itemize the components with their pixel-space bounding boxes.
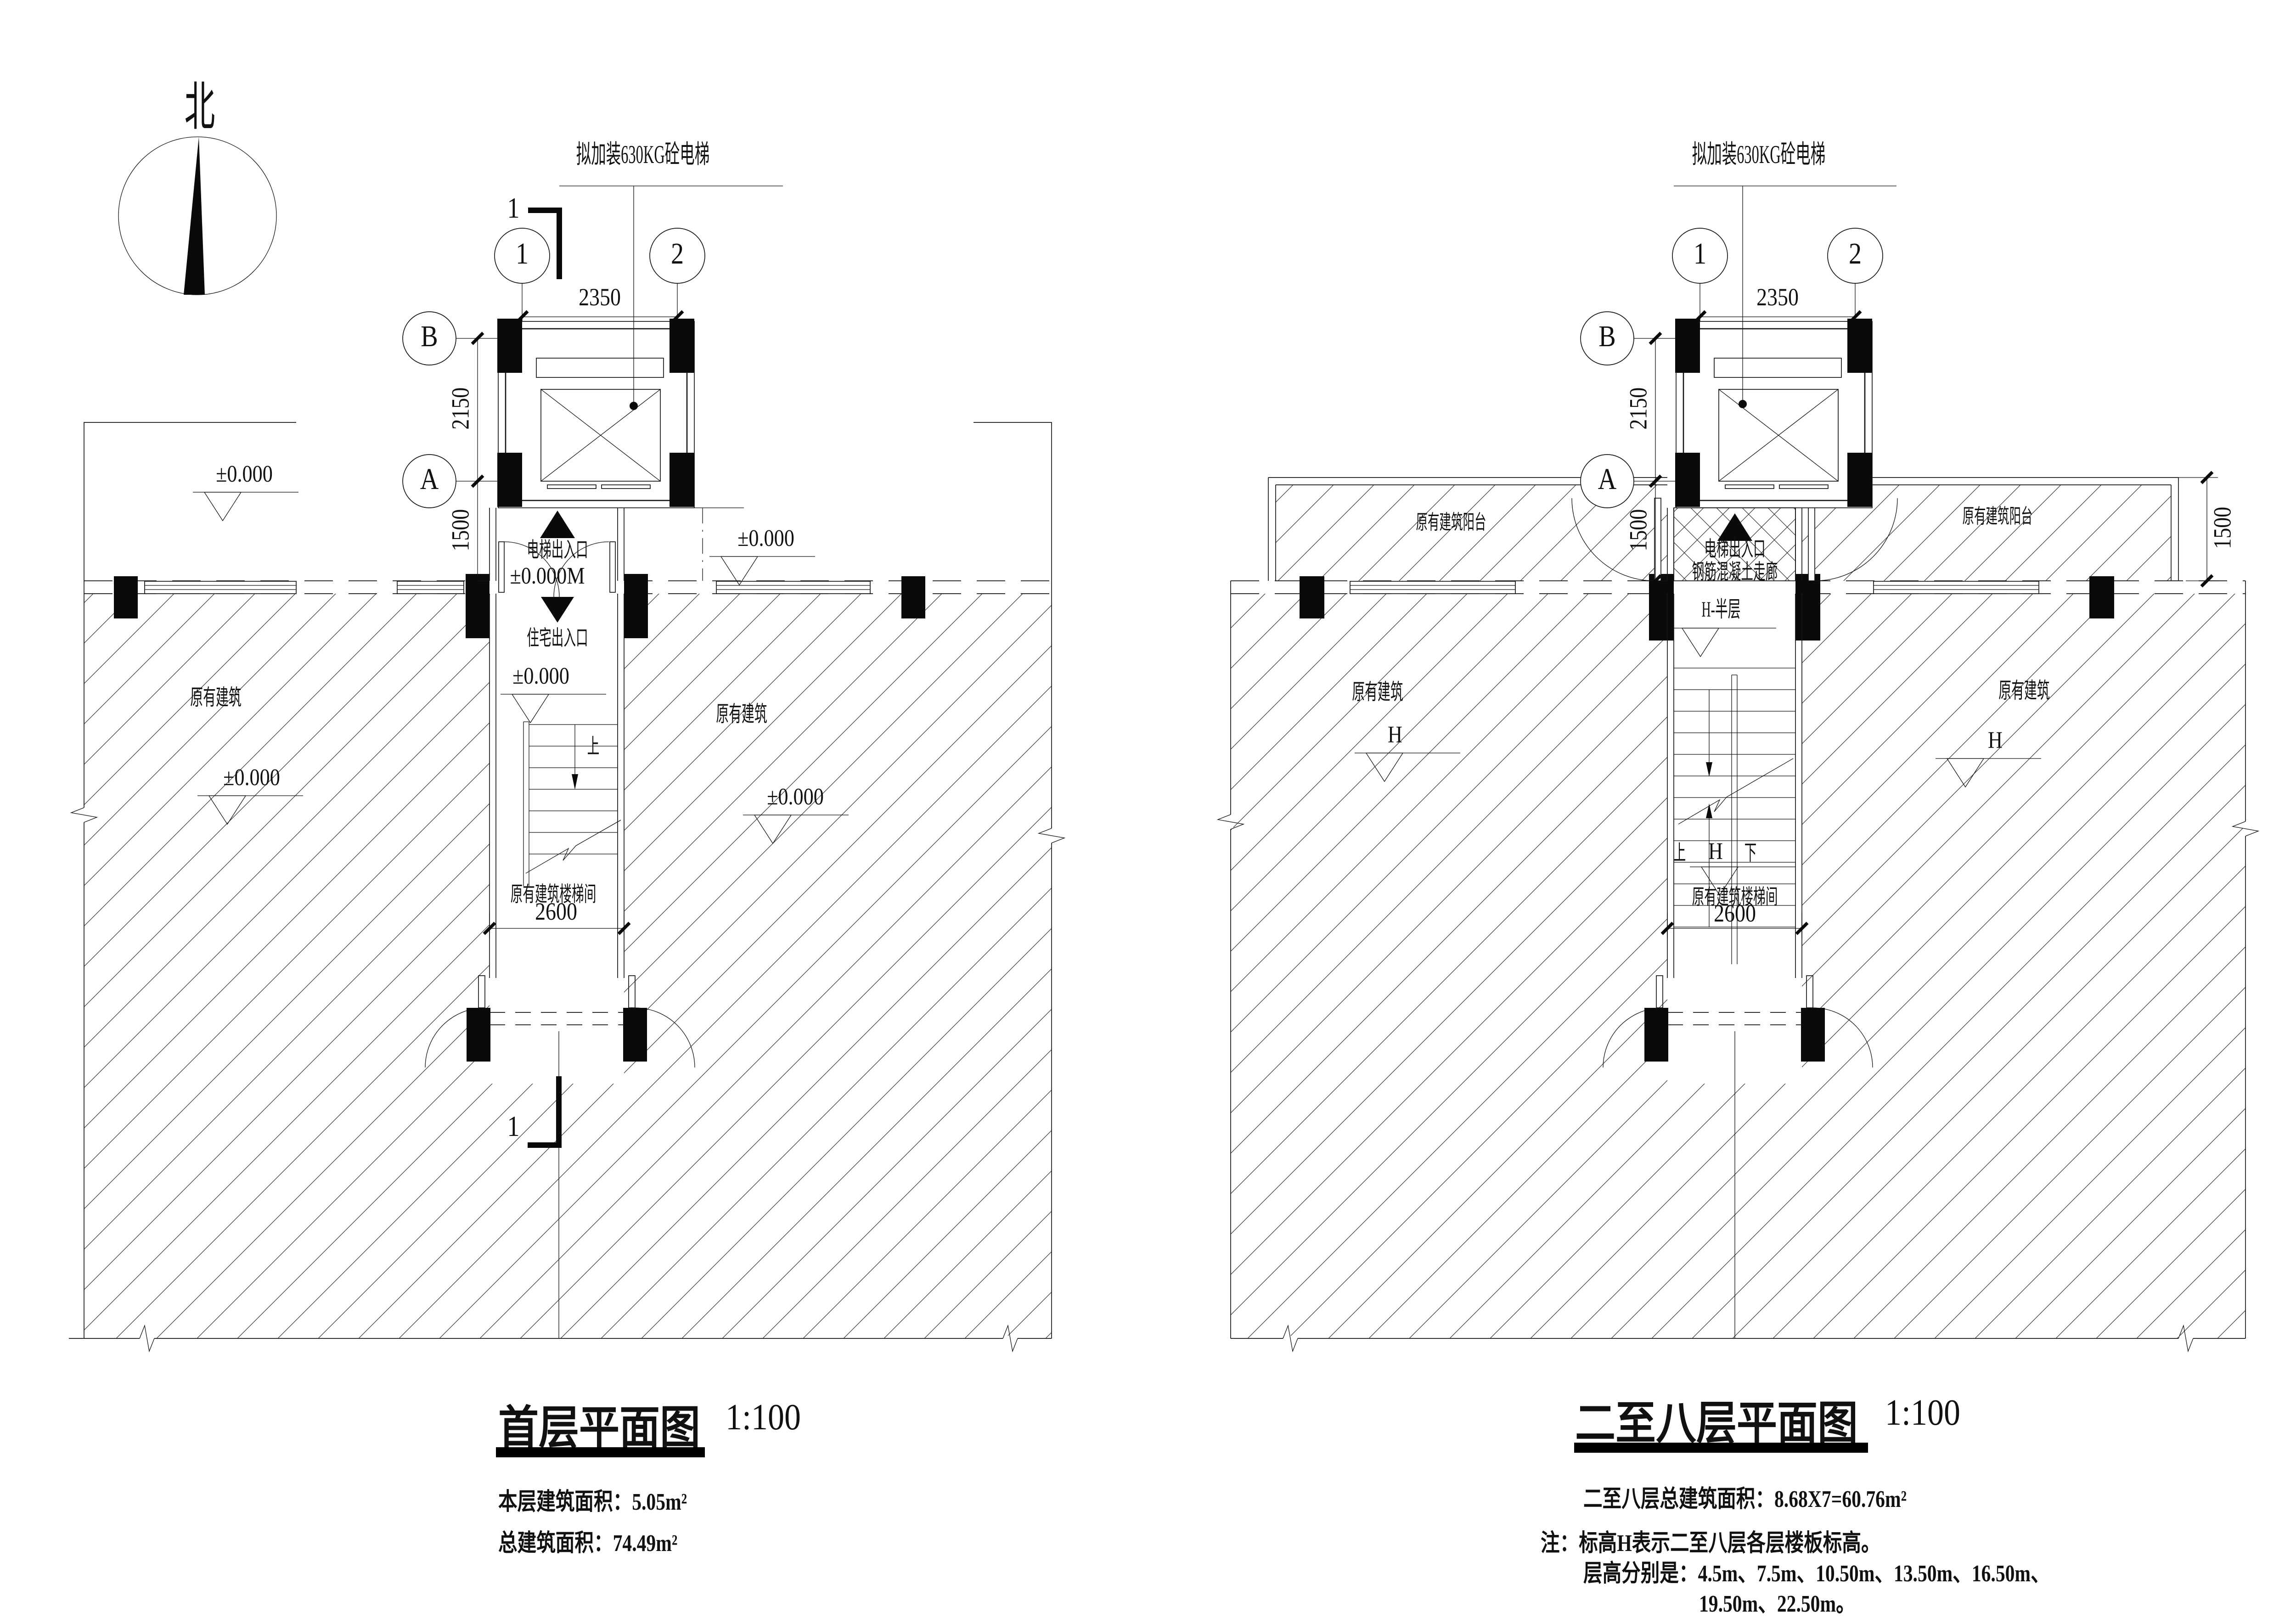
right-grid-bubble-2: 2 xyxy=(1738,237,1972,271)
left-floor-area-note: 本层建筑面积：5.05m² xyxy=(498,1482,687,1517)
right-title-underline xyxy=(1574,1443,1868,1453)
right-existing-building-left: 原有建筑 xyxy=(1298,680,1458,705)
hatch-existing-left xyxy=(1231,594,1667,1338)
left-grid-bubble-2: 2 xyxy=(560,237,794,271)
right-level-h-right: H xyxy=(1878,727,2112,753)
right-note-3: 19.50m、22.50m。 xyxy=(1699,1584,1855,1618)
left-dim-1500: 1500 xyxy=(447,413,474,647)
left-level-zero-stairwell: ±0.000 xyxy=(424,663,658,689)
residence-entrance-arrow-icon xyxy=(541,597,574,623)
right-dim-2350: 2350 xyxy=(1660,284,1895,311)
right-balcony-right-label: 原有建筑阳台 xyxy=(1918,505,2077,528)
right-corridor-label: 钢筋混凝土走廊 xyxy=(1655,560,1815,584)
left-title-underline xyxy=(496,1447,705,1457)
hatch-existing-right xyxy=(1802,594,2245,1338)
right-stairwell-label: 原有建筑楼梯间 xyxy=(1655,885,1815,910)
right-note-2: 层高分别是：4.5m、7.5m、10.50m、13.50m、16.50m、 xyxy=(1583,1554,2050,1588)
right-half-level-label: H-半层 xyxy=(1641,597,1801,622)
left-up-label: 上 xyxy=(513,735,673,759)
right-corridor-entrance-label: 电梯出入口 xyxy=(1655,537,1815,562)
left-elevator-entrance-label: 电梯出入口 xyxy=(478,538,637,562)
level-marker xyxy=(193,492,298,521)
left-section-number-top: 1 xyxy=(396,192,630,224)
right-note-1: 注：标高H表示二至八层各层楼板标高。 xyxy=(1541,1523,1880,1558)
left-entry-level-label: ±0.000M xyxy=(430,563,664,589)
left-residence-entrance-label: 住宅出入口 xyxy=(478,626,637,651)
right-leader-text: 拟加装630KG砼电梯 xyxy=(1679,140,1839,169)
right-down-label: 下 xyxy=(1671,841,1830,865)
north-arrow-icon xyxy=(118,137,276,295)
left-section-number-bottom: 1 xyxy=(396,1110,630,1142)
left-grid-bubble-B: B xyxy=(312,320,546,354)
right-dim-1500-balcony: 1500 xyxy=(2209,411,2236,645)
left-existing-building-left: 原有建筑 xyxy=(136,685,296,710)
left-level-hatch-right: ±0.000 xyxy=(678,784,912,810)
right-level-h-left: H xyxy=(1278,722,1512,748)
right-existing-building-right: 原有建筑 xyxy=(1944,678,2104,703)
right-total-area-note: 二至八层总建筑面积：8.68X7=60.76m² xyxy=(1583,1479,1907,1514)
floor-plan-sheet: 北 拟加装630KG砼电梯 1 2 B A 2350 2150 1500 260… xyxy=(0,0,2296,1624)
left-plan-scale: 1:100 xyxy=(726,1397,801,1439)
left-existing-building-right: 原有建筑 xyxy=(662,702,822,727)
level-marker xyxy=(501,694,606,723)
left-level-outdoor-left: ±0.000 xyxy=(127,461,361,487)
right-grid-bubble-B: B xyxy=(1490,320,1724,354)
elevator-entrance-arrow-icon xyxy=(540,511,575,538)
level-marker-h xyxy=(1671,628,1776,657)
left-dim-2350: 2350 xyxy=(483,284,717,311)
north-label: 北 xyxy=(120,77,280,138)
left-stairwell-label: 原有建筑楼梯间 xyxy=(473,882,633,907)
left-level-hatch-left: ±0.000 xyxy=(135,764,369,791)
right-grid-bubble-A: A xyxy=(1490,463,1724,496)
left-level-outdoor-right: ±0.000 xyxy=(649,525,883,551)
left-leader-text: 拟加装630KG砼电梯 xyxy=(563,140,723,169)
left-total-area-note: 总建筑面积：74.49m² xyxy=(498,1523,677,1558)
right-plan-scale: 1:100 xyxy=(1885,1392,1960,1434)
right-plan-linework xyxy=(1218,186,2258,1351)
right-balcony-left-label: 原有建筑阳台 xyxy=(1371,511,1531,534)
